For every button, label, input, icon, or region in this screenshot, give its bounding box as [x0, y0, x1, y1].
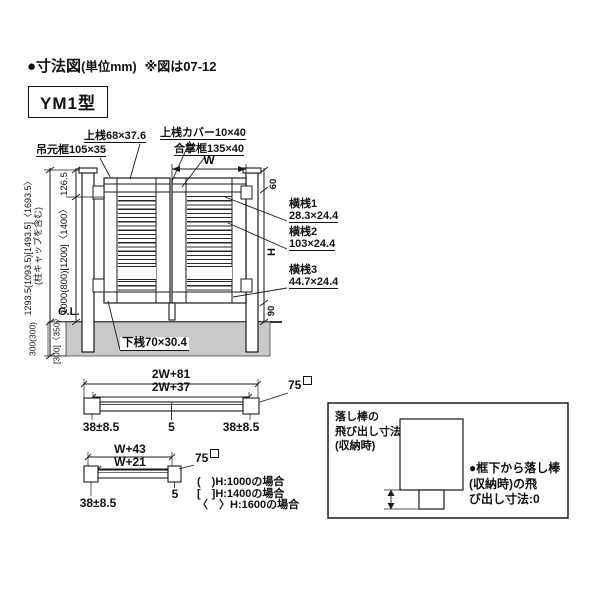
label-cross-rail3-size: 44.7×24.4: [289, 276, 338, 289]
legend-h1600: 〈 〉H:1600の場合: [197, 500, 299, 512]
plan-double-post-size: 75: [288, 379, 312, 392]
louver-panel-right-lower: [187, 281, 232, 292]
dim-embed-depth-bracket: [300]〈350〉: [52, 314, 61, 364]
legend-h1000: ( )H:1000の場合: [197, 477, 299, 489]
dropbar-right-note-line3: び出し寸法:0: [469, 492, 560, 508]
unit-note: (単位mm): [81, 60, 137, 74]
left-post: [82, 173, 94, 352]
stile-bottom-shape: [400, 419, 463, 490]
page-title: ●寸法図: [27, 58, 81, 75]
plan-single-inner-width: W+21: [104, 456, 156, 469]
gate-elevation-drawing: [44, 141, 287, 359]
dim-bottom-clearance: 90: [267, 306, 277, 317]
h-dimension-label: H: [266, 248, 278, 256]
plan-double-left-offset: 38±8.5: [77, 421, 125, 434]
dropbar-right-note-line1: ●框下から落し棒: [469, 461, 560, 477]
louver-panel-right-upper: [187, 196, 232, 264]
louver-panel-left-lower: [118, 281, 156, 292]
dropbar-right-note-line2: (収納時)の飛: [469, 477, 560, 493]
plan-single-end-gap: 5: [169, 488, 181, 501]
dim-top-offset: 60: [269, 179, 279, 190]
dim-cap-offset: 126.5: [60, 172, 70, 196]
dim-overall-height-note: (柱キャップを含む): [34, 176, 44, 315]
left-post-cap: [79, 168, 97, 173]
label-bottom-rail: 下桟70×30.4: [120, 337, 189, 351]
plan-double-center-gap: 5: [165, 421, 178, 434]
dim-overall-height-block: 1293.5(1093.5)[1493.5]〈1693.5〉 (柱キャップを含む…: [24, 176, 44, 315]
square-icon: [303, 376, 312, 385]
plan-double-post-size-value: 75: [288, 378, 301, 392]
plan-double-right-post: [243, 398, 259, 414]
square-icon: [210, 449, 219, 458]
plan-single-post-size-value: 75: [195, 451, 208, 465]
plan-single-post-size: 75: [195, 452, 219, 465]
dropbar-left-note-line3: (収納時): [335, 439, 401, 454]
middle-rail-left: [118, 266, 156, 280]
figure-reference-note: ※図は07-12: [145, 59, 217, 74]
right-post: [246, 173, 258, 352]
height-variant-legend: ( )H:1000の場合 [ ]H:1400の場合 〈 〉H:1600の場合: [197, 477, 299, 512]
hinge-bottom-right: [241, 279, 252, 292]
dropbar-right-note: ●框下から落し棒 (収納時)の飛 び出し寸法:0: [469, 461, 560, 508]
hinge-bottom-left: [93, 279, 104, 292]
label-cross-rail3-name: 横桟3: [289, 264, 317, 276]
plan-double-right-offset: 38±8.5: [217, 421, 265, 434]
model-label: YM1型: [28, 86, 108, 118]
page-header: ●寸法図(単位mm)※図は07-12: [27, 58, 217, 76]
label-cross-rail1-size: 28.3×24.4: [289, 210, 338, 223]
plan-single-left-post: [84, 466, 98, 482]
label-top-rail: 上桟68×37.6: [84, 130, 146, 143]
dim-post-height: 1000(800)[1200]〈1400〉: [60, 204, 70, 314]
middle-rail-right: [187, 266, 232, 280]
dropbar-left-note-line2: 飛び出し寸法: [335, 425, 401, 440]
dropbar-left-note-line1: 落し棒の: [335, 410, 401, 425]
louver-panel-left-upper: [118, 196, 156, 264]
plan-single-left-offset: 38±8.5: [74, 497, 122, 510]
drop-bar: [169, 303, 175, 320]
dropbar-left-note: 落し棒の 飛び出し寸法 (収納時): [335, 410, 401, 454]
label-hanging-stile: 吊元框105×35: [36, 144, 106, 157]
dropbar-shape: [419, 490, 444, 509]
label-cross-rail2-size: 103×24.4: [289, 238, 335, 251]
w-dimension-label: W: [197, 154, 221, 167]
plan-double-inner-width: 2W+37: [141, 381, 201, 394]
label-cross-rail1-name: 横桟1: [289, 198, 317, 210]
plan-single-right-post: [168, 466, 181, 482]
label-top-rail-cover: 上桟カバー10×40: [160, 127, 246, 140]
hinge-top-right: [241, 186, 252, 199]
dimension-diagram-page: ●寸法図(単位mm)※図は07-12 YM1型 上桟68×37.6 上桟カバー1…: [0, 0, 600, 600]
label-cross-rail2-name: 横桟2: [289, 226, 317, 238]
plan-single-gate-bar: [98, 470, 168, 478]
plan-double-left-post: [84, 398, 100, 414]
dim-embed-depth-main: 300(300): [28, 322, 37, 356]
